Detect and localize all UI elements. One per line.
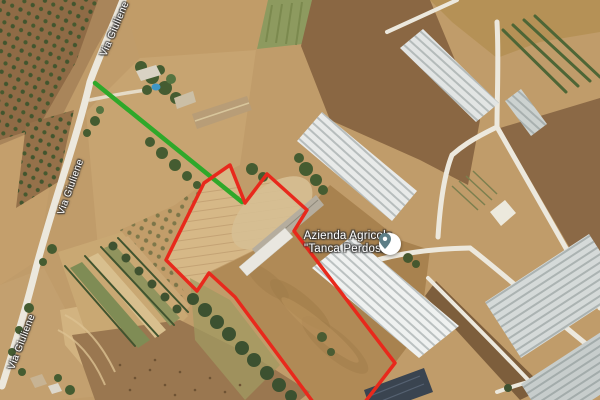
map-pin-icon [379, 233, 391, 249]
poi-marker[interactable] [379, 233, 401, 255]
satellite-basemap [0, 0, 600, 400]
swimming-pool [152, 84, 161, 91]
map-canvas[interactable]: Via Giuliene Via Giuliene Via Giuliene A… [0, 0, 600, 400]
